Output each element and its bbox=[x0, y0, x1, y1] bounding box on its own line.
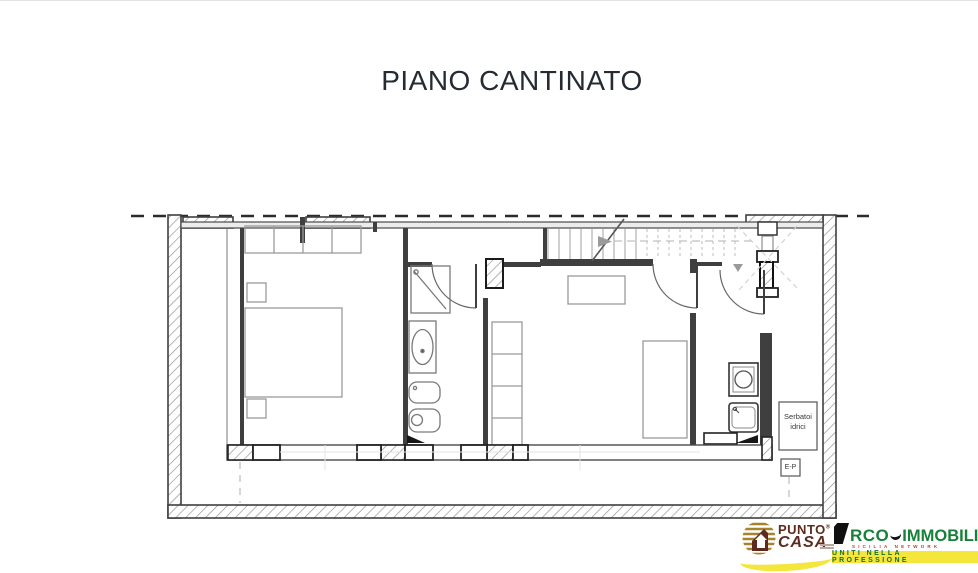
punto-casa-logo: PUNTO® CASA bbox=[742, 520, 834, 564]
bathroom-fixtures bbox=[409, 266, 450, 432]
washbasin bbox=[412, 330, 433, 365]
nightstand bbox=[247, 283, 266, 302]
bedroom-furniture bbox=[245, 226, 361, 418]
floor-plan-drawing bbox=[0, 0, 978, 566]
desk bbox=[643, 341, 687, 438]
bed bbox=[245, 308, 342, 397]
door-arcs bbox=[432, 264, 764, 314]
registered-mark: ® bbox=[826, 525, 831, 531]
floor-plan: Serbatoi idrici E-P bbox=[0, 0, 978, 566]
top-wall bbox=[181, 222, 823, 228]
arco-network-subtext: SICILIA NETWORK bbox=[852, 544, 940, 549]
agency-logos: PUNTO® CASA RCO IMMOBILIARE SICILIA NETW… bbox=[738, 518, 978, 566]
bidet bbox=[409, 382, 440, 403]
level-marker bbox=[733, 264, 743, 272]
page-background: PIANO CANTINATO bbox=[0, 0, 978, 566]
arco-wordmark: RCO IMMOBILIARE bbox=[834, 522, 978, 544]
sill-shade-right bbox=[736, 435, 758, 443]
arco-a-glyph bbox=[834, 523, 849, 544]
dashed-drops bbox=[240, 462, 789, 503]
laundry-fixtures bbox=[729, 363, 758, 432]
interior-walls bbox=[240, 228, 772, 445]
sill-box-right bbox=[704, 433, 737, 444]
arco-immobiliare-logo: RCO IMMOBILIARE SICILIA NETWORK UNITI NE… bbox=[832, 518, 978, 566]
column-hatched-left bbox=[486, 259, 503, 288]
arco-tagline-band: UNITI NELLA PROFESSIONE bbox=[832, 551, 978, 563]
washbasin-counter bbox=[409, 321, 436, 373]
water-tanks-label: Serbatoi idrici bbox=[779, 412, 817, 432]
arco-tagline: UNITI NELLA PROFESSIONE bbox=[832, 550, 978, 564]
electrical-panel-label: E-P bbox=[781, 463, 800, 472]
table bbox=[568, 276, 625, 304]
toilet bbox=[409, 409, 440, 432]
punto-casa-house-icon bbox=[742, 521, 776, 555]
arco-swoosh-icon bbox=[889, 527, 902, 540]
shaft-stack-right bbox=[757, 222, 778, 297]
nightstand bbox=[247, 399, 266, 418]
door-leaves bbox=[476, 264, 764, 314]
central-room-furniture bbox=[492, 276, 687, 450]
sill-shade-left bbox=[407, 435, 425, 443]
